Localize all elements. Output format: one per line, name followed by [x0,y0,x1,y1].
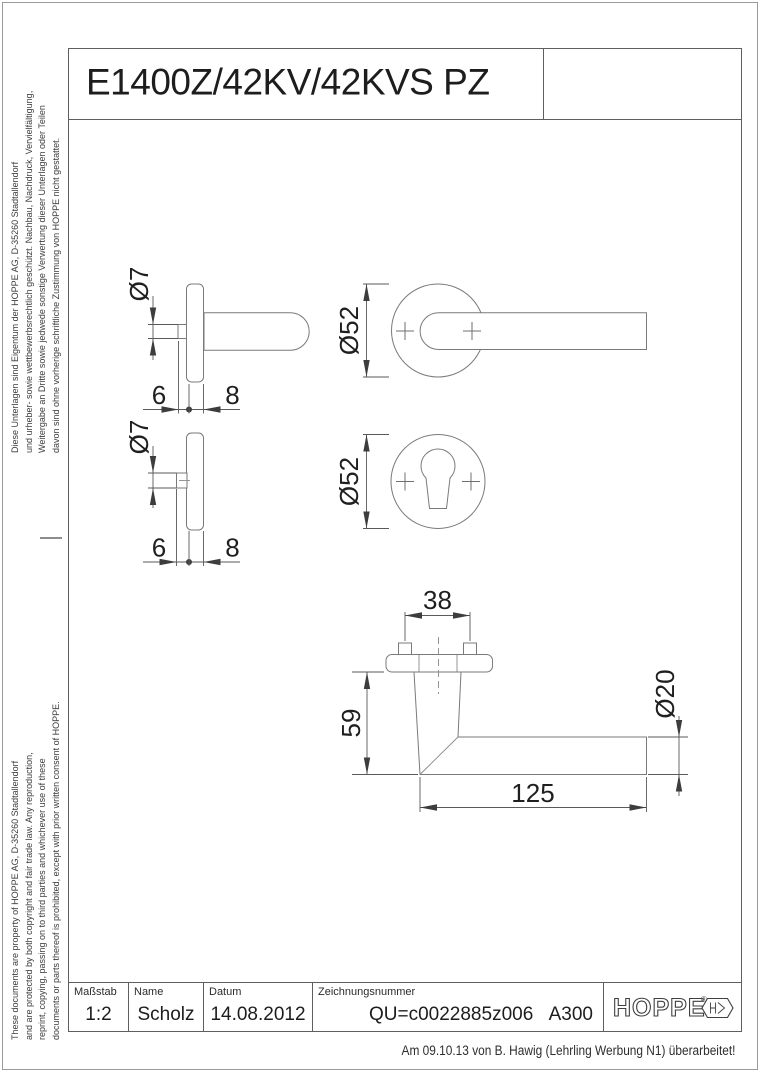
rose-side [187,284,204,382]
dim-offset: 6 [152,533,166,563]
dim-thickness: 8 [225,380,239,410]
drawing-sheet: Diese Unterlagen sind Eigentum der HOPPE… [0,0,763,1080]
mounting-stud [464,643,477,655]
escutcheon-side-body [187,433,204,530]
dim-thickness: 8 [225,533,239,563]
dim-rose-dia: Ø52 [334,457,364,506]
dim-spindle-dia: Ø7 [124,420,154,455]
view-handle-profile: 38 59 Ø20 125 [336,585,688,812]
dim-spindle-dia: Ø7 [124,267,154,302]
dim-height: 59 [336,709,366,738]
dim-grip-dia: Ø20 [650,669,680,718]
view-escutcheon-side: Ø7 6 8 [124,420,240,566]
mounting-stud [399,643,412,655]
view-handle-rose-side: Ø7 6 8 [124,267,309,414]
dim-stud-spacing: 38 [423,585,452,615]
dim-rose-dia: Ø52 [334,306,364,355]
dim-length: 125 [511,778,554,808]
revision-note: Am 09.10.13 von B. Hawig (Lehrling Werbu… [401,1043,735,1058]
dim-offset: 6 [152,380,166,410]
view-escutcheon-front: Ø52 [334,435,485,529]
lever-profile [414,672,647,775]
technical-drawing: Ø7 6 8 Ø52 [0,0,763,1080]
mounting-plate [386,655,493,673]
view-handle-front: Ø52 [334,284,647,377]
spindle-stub [178,325,187,339]
lever-front [420,313,646,350]
handle-neck-side [204,313,309,350]
